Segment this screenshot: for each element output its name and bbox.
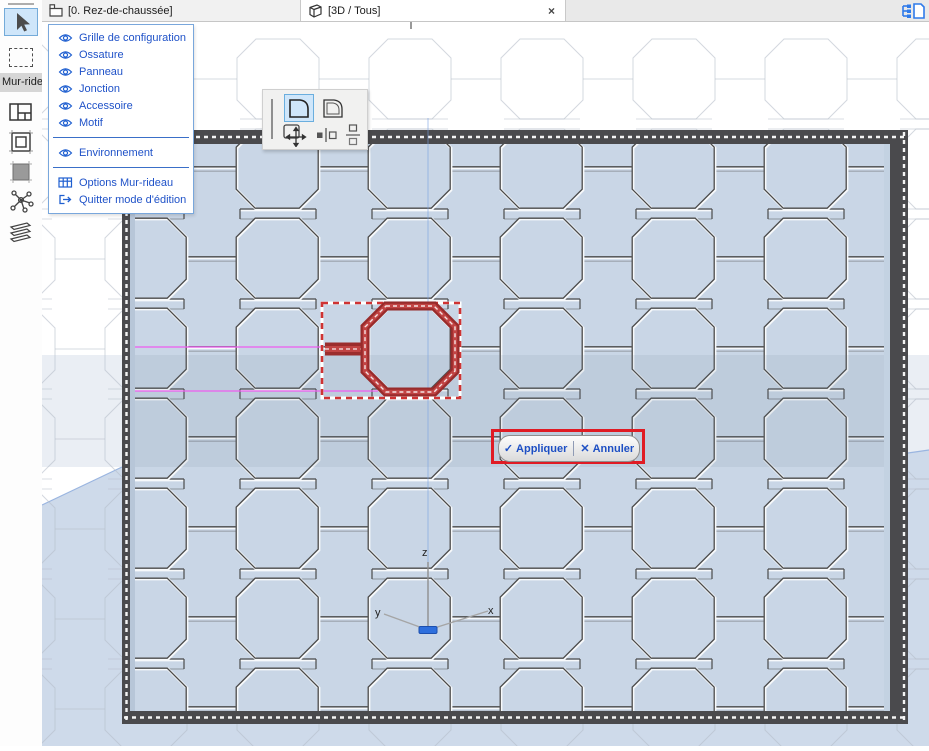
story-icon <box>49 4 63 17</box>
options-grid-icon <box>57 177 73 188</box>
align-tool[interactable] <box>315 126 339 144</box>
menu-item-ossature[interactable]: Ossature <box>49 46 193 63</box>
toolbar-drag-handle[interactable] <box>8 3 34 5</box>
menu-item-label: Motif <box>79 117 103 129</box>
cancel-button-label: Annuler <box>593 443 635 455</box>
scheme-grid-tool[interactable] <box>4 98 38 126</box>
panel-boundary-tool[interactable] <box>284 94 314 122</box>
menu-item-label: Grille de configuration <box>79 32 186 44</box>
panel-shape-icon <box>286 97 312 119</box>
panel-icon <box>8 159 34 185</box>
tab-label: [3D / Tous] <box>328 5 380 17</box>
eye-icon <box>57 50 73 60</box>
apply-cancel-bar: ✓ Appliquer ✕ Annuler <box>498 435 640 462</box>
menu-item-accessoire[interactable]: Accessoire <box>49 97 193 114</box>
move-tool[interactable] <box>282 123 310 147</box>
eye-icon <box>57 101 73 111</box>
palette-drag-handle[interactable] <box>271 99 273 139</box>
menu-item-label: Jonction <box>79 83 120 95</box>
menu-divider <box>53 137 189 138</box>
menu-item-label: Panneau <box>79 66 123 78</box>
tab-bar: [0. Rez-de-chaussée] [3D / Tous] × <box>42 0 929 22</box>
curtain-wall-edit-menu: Grille de configurationOssaturePanneauJo… <box>48 24 194 214</box>
frame-tool[interactable] <box>4 128 38 156</box>
close-tab-icon[interactable]: × <box>548 5 555 17</box>
eye-icon <box>57 67 73 77</box>
menu-item-quitter-mode-d-edition[interactable]: Quitter mode d'édition <box>49 191 193 208</box>
arrow-tool[interactable] <box>4 8 38 36</box>
toolbar-group-label: Mur-ride <box>0 73 42 92</box>
menu-divider <box>53 167 189 168</box>
menu-item-panneau[interactable]: Panneau <box>49 63 193 80</box>
menu-item-label: Environnement <box>79 147 153 159</box>
scheme-grid-icon <box>8 100 34 124</box>
menu-item-motif[interactable]: Motif <box>49 114 193 131</box>
apply-cancel-highlight: ✓ Appliquer ✕ Annuler <box>491 429 645 464</box>
menu-item-options-mur-rideau[interactable]: Options Mur-rideau <box>49 174 193 191</box>
y-axis-label: y <box>375 607 381 619</box>
eye-icon <box>57 33 73 43</box>
tab-3d-view[interactable]: [3D / Tous] × <box>301 0 566 21</box>
panel-tool[interactable] <box>4 158 38 186</box>
tab-overview-icon[interactable] <box>898 2 926 20</box>
marquee-icon <box>9 48 33 67</box>
menu-item-grille-de-configuration[interactable]: Grille de configuration <box>49 29 193 46</box>
frame-icon <box>8 129 34 155</box>
3d-view-icon <box>308 4 323 18</box>
arrow-cursor-icon <box>9 10 33 34</box>
button-separator <box>573 441 574 456</box>
pet-palette <box>262 89 368 150</box>
menu-item-label: Ossature <box>79 49 124 61</box>
move-arrows-icon <box>282 123 310 147</box>
junction-icon <box>8 189 34 215</box>
menu-item-environnement[interactable]: Environnement <box>49 144 193 161</box>
eye-icon <box>57 84 73 94</box>
panel-offset-icon <box>320 97 346 119</box>
ground-plane-left <box>42 467 122 746</box>
menu-item-label: Accessoire <box>79 100 133 112</box>
eye-icon <box>57 118 73 128</box>
distribute-icon <box>345 123 361 147</box>
menu-item-jonction[interactable]: Jonction <box>49 80 193 97</box>
junction-tool[interactable] <box>4 188 38 216</box>
cancel-button[interactable]: ✕ Annuler <box>580 442 634 455</box>
exit-icon <box>57 194 73 205</box>
z-axis-label: z <box>422 547 428 559</box>
application-window: { "window": { "tab_bar": { "tabs": [ {"l… <box>0 0 929 746</box>
left-toolbar: Mur-ride <box>0 0 42 746</box>
origin-marker <box>419 627 437 634</box>
tab-floor-plan[interactable]: [0. Rez-de-chaussée] <box>42 0 301 21</box>
menu-item-label: Options Mur-rideau <box>79 177 173 189</box>
panel-offset-tool[interactable] <box>318 94 348 122</box>
apply-button-label: Appliquer <box>516 443 567 455</box>
cross-icon: ✕ <box>580 442 589 455</box>
menu-item-label: Quitter mode d'édition <box>79 194 186 206</box>
eye-icon <box>57 148 73 158</box>
marquee-tool[interactable] <box>4 43 38 71</box>
accessory-icon <box>8 219 34 245</box>
x-axis-label: x <box>488 605 494 617</box>
apply-button[interactable]: ✓ Appliquer <box>504 442 568 455</box>
tab-label: [0. Rez-de-chaussée] <box>68 5 173 17</box>
distribute-tool[interactable] <box>345 123 361 147</box>
align-icon <box>315 126 339 144</box>
check-icon: ✓ <box>504 442 513 455</box>
accessory-tool[interactable] <box>4 218 38 246</box>
